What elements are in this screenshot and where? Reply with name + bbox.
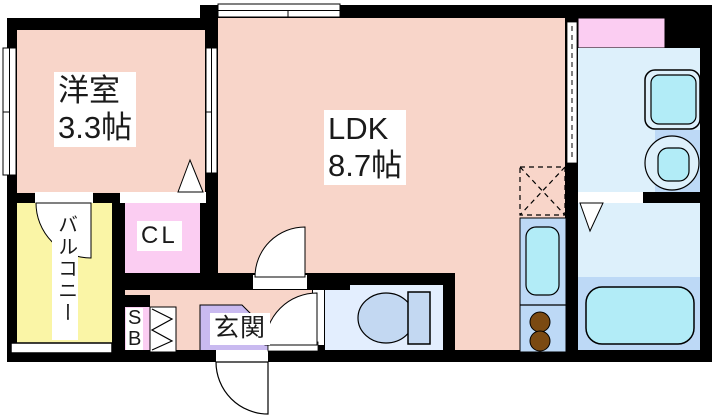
floorplan-canvas: 洋室3.3帖 LDK8.7帖 バルコニー CL SB 玄関 [0,0,716,420]
entrance-doorway [216,350,268,362]
ldk-size: 8.7帖 [328,148,402,183]
wall-segment [443,273,455,362]
window-icon [218,4,340,17]
western-room-size: 3.3帖 [58,110,132,145]
closet-opening [120,192,206,203]
floorplan-drawing [0,0,716,420]
storage-shelf [578,18,665,48]
toilet-icon [358,293,414,343]
stove-burner-icon [530,312,550,332]
closet-label: CL [137,221,182,251]
bathroom-doorway [578,192,643,203]
balcony-railing [11,343,112,353]
wash-basin-bowl [658,148,689,181]
bathtub-icon [586,287,694,344]
ldk-label: LDK8.7帖 [324,110,406,185]
window-icon [206,48,217,173]
folding-door-icon [150,307,176,352]
ldk-name: LDK [328,111,388,146]
washing-machine-icon [651,75,696,124]
stove-burner-icon [530,331,550,351]
balcony-label: バルコニー [52,210,78,340]
wall-segment [112,295,150,307]
toilet-tank [408,292,430,344]
toilet-fixtures [358,292,430,344]
sliding-door-icon [567,22,577,163]
western-room-name: 洋室 [58,73,120,108]
kitchen-sink-icon [526,227,559,295]
window-icon [3,48,16,175]
western-room-label: 洋室3.3帖 [54,72,136,147]
wall-segment [700,5,712,362]
wall-segment [7,18,218,30]
wall-segment [665,18,700,48]
entrance-label: 玄関 [210,313,270,345]
shoe-box-label: SB [126,308,143,350]
wall-segment [312,273,455,285]
door-arc-icon [216,362,268,414]
balcony-doorway [35,192,93,203]
